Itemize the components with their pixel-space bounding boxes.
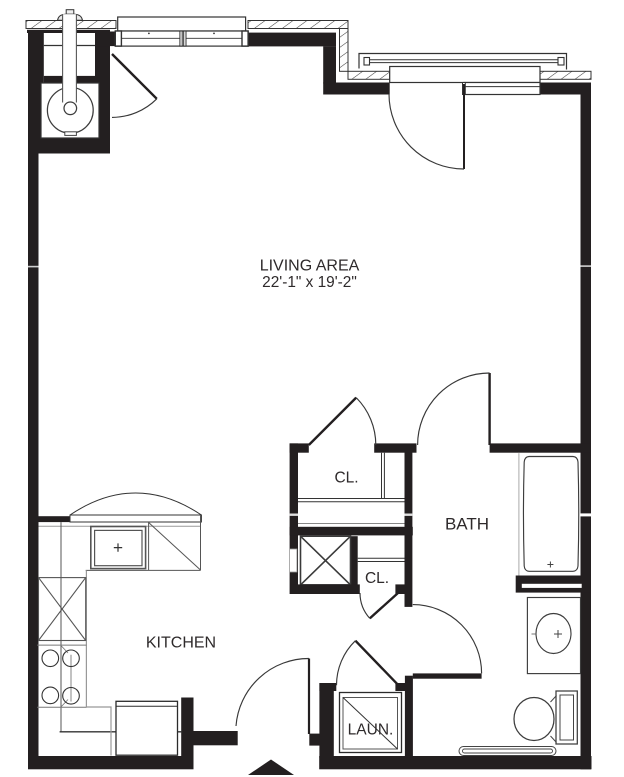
svg-text:LAUN.: LAUN. <box>348 722 394 739</box>
svg-text:22'-1" x 19'-2": 22'-1" x 19'-2" <box>262 274 357 291</box>
svg-text:CL.: CL. <box>334 470 358 487</box>
svg-text:LIVING AREA: LIVING AREA <box>260 258 360 275</box>
svg-text:BATH: BATH <box>445 515 489 534</box>
svg-text:CL.: CL. <box>365 570 389 587</box>
svg-text:KITCHEN: KITCHEN <box>146 635 216 652</box>
